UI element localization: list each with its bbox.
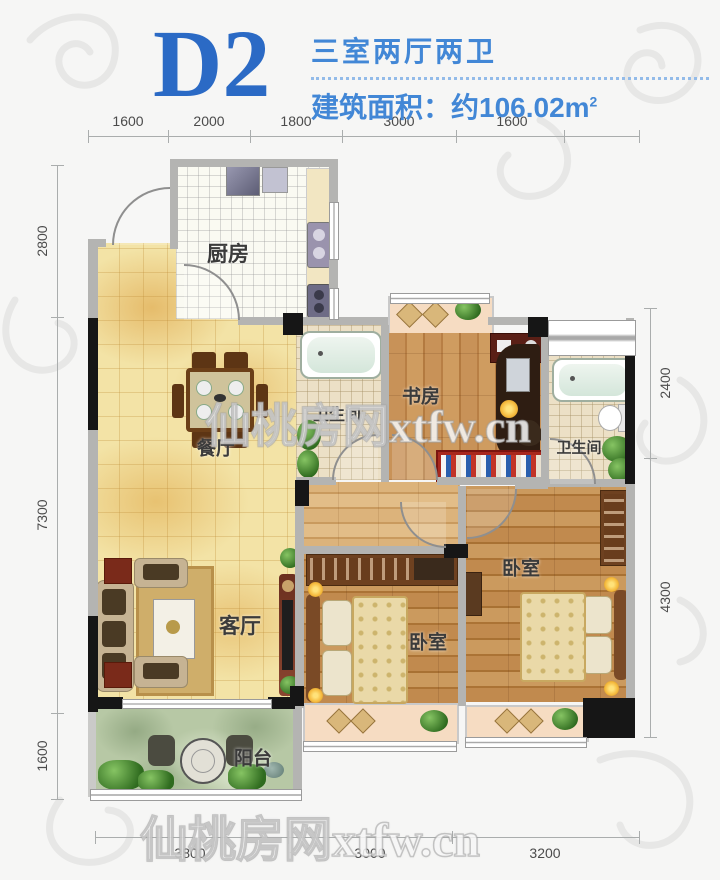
- area-superscript: 2: [590, 94, 598, 110]
- wardrobe: [600, 490, 628, 566]
- wall: [300, 546, 458, 554]
- living-label: 客厅: [219, 610, 261, 640]
- bearing-wall: [88, 318, 98, 430]
- bed: [306, 594, 404, 702]
- area-text: 建筑面积：约106.02m2: [311, 86, 711, 126]
- header-divider: [311, 77, 709, 80]
- wall: [515, 482, 548, 489]
- table-ring: [191, 749, 215, 773]
- sofa-cushion: [102, 589, 126, 615]
- bedside-lamp: [308, 582, 323, 597]
- books: [441, 455, 543, 477]
- dim-right-1: 2400: [657, 367, 673, 398]
- dim-tick: [456, 130, 457, 143]
- side-table: [104, 558, 132, 584]
- dim-tick: [342, 130, 343, 143]
- plan-code-title: D2: [153, 16, 270, 112]
- bearing-wall: [583, 698, 635, 738]
- dim-top-1: 1600: [112, 113, 143, 129]
- dim-tick: [51, 165, 64, 166]
- bearing-wall: [295, 480, 309, 506]
- coffee-table: [153, 599, 195, 659]
- sink-basin: [313, 247, 325, 259]
- wall: [626, 480, 635, 704]
- balcony-chair: [148, 735, 175, 766]
- wardrobe-hangers: [310, 558, 410, 580]
- watermark-bottom: 仙桃房网xtfw.cn: [140, 800, 480, 870]
- wall: [170, 159, 178, 249]
- dim-left-1: 2800: [34, 225, 50, 256]
- dining-bench: [172, 384, 184, 418]
- bearing-wall: [283, 313, 303, 335]
- wall: [293, 705, 302, 793]
- dresser: [464, 572, 482, 616]
- burner: [314, 303, 324, 313]
- bathtub-drain: [318, 351, 323, 356]
- dim-tick: [95, 831, 96, 844]
- stove: [307, 284, 331, 318]
- sofa-cushion: [143, 564, 179, 580]
- bathroom2-window: [548, 320, 636, 356]
- dim-tick: [639, 130, 640, 143]
- bathtub: [552, 358, 634, 402]
- tv: [282, 600, 293, 670]
- sofa-single-bottom: [134, 656, 188, 688]
- dim-tick: [644, 737, 657, 738]
- pillow: [582, 636, 612, 674]
- kitchen-appliance: [262, 167, 288, 193]
- dim-left-3: 1600: [34, 740, 50, 771]
- bedside-lamp: [604, 577, 619, 592]
- dim-tick: [88, 130, 89, 143]
- wall: [295, 482, 304, 708]
- header-info-block: 三室两厅两卫 建筑面积：约106.02m2: [311, 30, 711, 126]
- bedside-lamp: [308, 688, 323, 703]
- middle-bedroom-bay-sill: [303, 741, 457, 752]
- bearing-wall: [290, 686, 304, 706]
- plant: [552, 708, 578, 730]
- area-value: 建筑面积：约106.02m: [311, 92, 590, 123]
- bearing-wall: [625, 338, 635, 484]
- wardrobe-cabinet: [414, 558, 454, 580]
- bed-blanket: [520, 592, 586, 682]
- dim-tick: [644, 308, 657, 309]
- floorplan-page: D2 三室两厅两卫 建筑面积：约106.02m2 1600 2000 1800 …: [0, 0, 720, 880]
- study-bay-window: [390, 293, 490, 304]
- bathtub-basin: [307, 337, 375, 373]
- dim-tick: [639, 831, 640, 844]
- kitchen-window: [329, 288, 339, 320]
- wall: [458, 548, 466, 706]
- watermark-center: 仙桃房网xtfw.cn: [205, 390, 531, 456]
- layout-type-text: 三室两厅两卫: [311, 30, 711, 70]
- sofa-cushion: [143, 663, 179, 679]
- bedside-lamp: [604, 681, 619, 696]
- kitchen-label: 厨房: [207, 238, 249, 268]
- burner: [314, 290, 324, 300]
- kitchen-sink: [307, 222, 331, 268]
- balcony-table: [180, 738, 226, 784]
- dim-line-right: [650, 308, 651, 737]
- master-bedroom-bay-sill: [465, 737, 587, 748]
- dim-right-2: 4300: [657, 581, 673, 612]
- dim-bottom-3: 3200: [529, 845, 560, 861]
- bathtub: [300, 331, 382, 379]
- dim-tick: [51, 799, 64, 800]
- dim-tick: [51, 317, 64, 318]
- pillow: [582, 596, 612, 634]
- dim-tick: [564, 130, 565, 143]
- dim-tick: [250, 130, 251, 143]
- dim-tick: [51, 713, 64, 714]
- fridge: [226, 164, 260, 196]
- plant: [420, 710, 448, 732]
- dim-tick: [644, 458, 657, 459]
- laptop: [506, 358, 530, 392]
- middle-bedroom-label: 卧室: [409, 628, 447, 655]
- bathtub-drain: [570, 376, 575, 381]
- bed-blanket: [352, 596, 408, 704]
- bed-headboard: [306, 594, 320, 702]
- table-decor: [166, 620, 180, 634]
- dim-line-left: [57, 165, 58, 800]
- toilet-bowl: [598, 405, 622, 431]
- side-table: [104, 662, 132, 688]
- balcony-side-wall: [88, 705, 96, 797]
- balcony-plants: [98, 760, 144, 790]
- dim-top-3: 1800: [280, 113, 311, 129]
- dim-tick: [168, 130, 169, 143]
- pillow: [322, 650, 352, 696]
- sofa-cushion: [102, 621, 126, 647]
- wall: [170, 159, 338, 167]
- speaker: [282, 580, 294, 592]
- sink-basin: [313, 229, 325, 241]
- bathtub-basin: [559, 364, 627, 396]
- bed: [520, 590, 628, 680]
- bearing-wall: [528, 317, 548, 337]
- bathroom2-label: 卫生间: [556, 437, 601, 458]
- bearing-wall: [95, 697, 123, 709]
- sofa-single-top: [134, 558, 188, 588]
- balcony-label: 阳台: [234, 744, 272, 771]
- pillow: [322, 600, 352, 646]
- dim-left-2: 7300: [34, 499, 50, 530]
- dim-line-top: [88, 136, 640, 137]
- wall: [458, 486, 466, 552]
- master-bedroom-label: 卧室: [502, 554, 540, 581]
- wardrobe: [306, 554, 458, 586]
- kitchen-window: [329, 202, 339, 260]
- balcony-sliding-door: [122, 699, 272, 709]
- wardrobe-hangers: [604, 494, 624, 562]
- bearing-wall: [444, 544, 468, 558]
